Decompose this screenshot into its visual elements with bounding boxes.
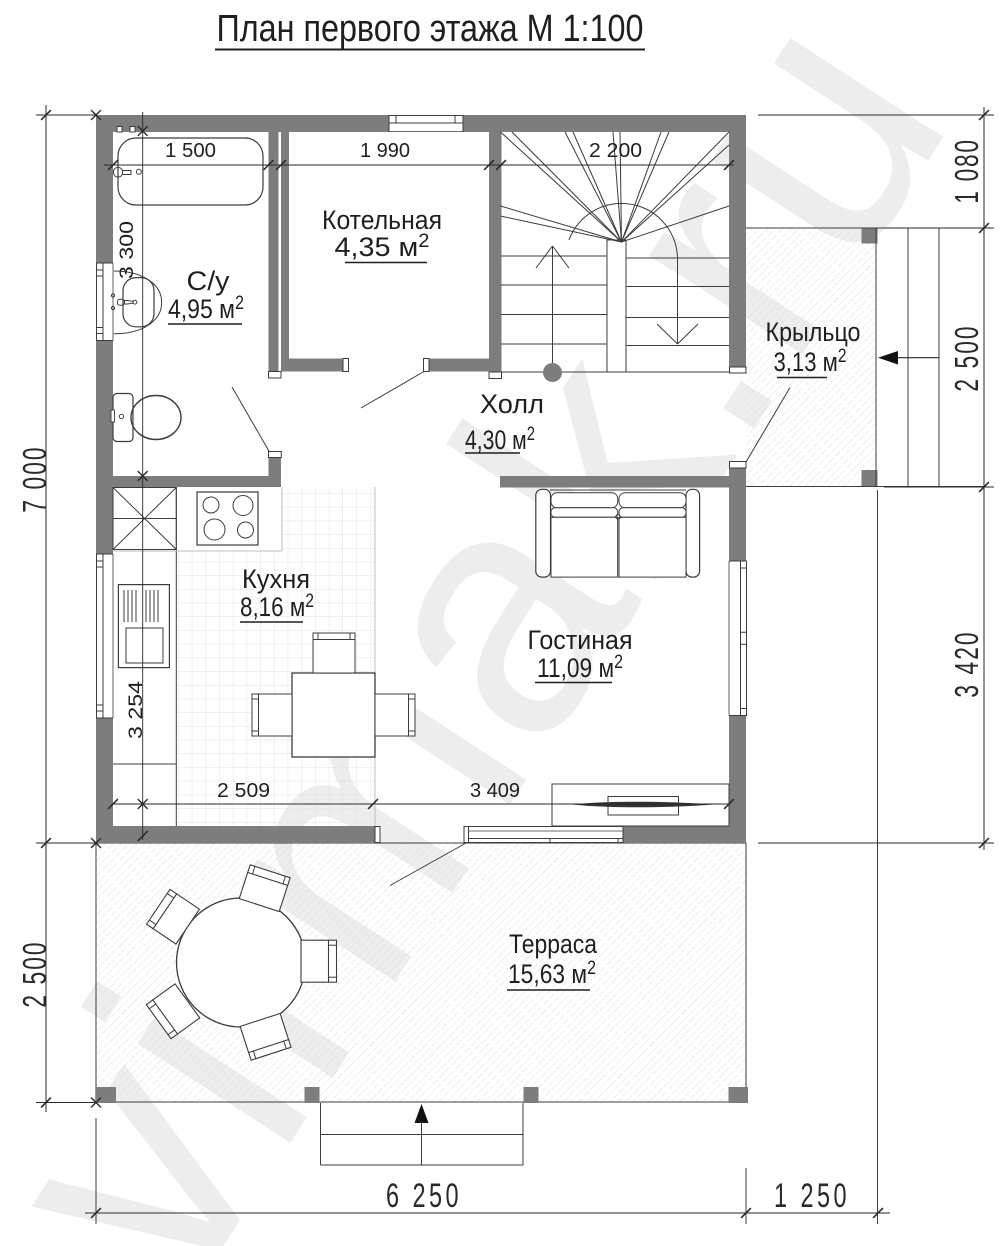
svg-text:3 409: 3 409 [470, 780, 520, 802]
svg-text:2 509: 2 509 [217, 780, 270, 802]
svg-text:Крыльцо: Крыльцо [766, 317, 861, 347]
svg-text:3 300: 3 300 [117, 221, 138, 279]
svg-text:11,09 м2: 11,09 м2 [537, 652, 623, 683]
svg-text:2 500: 2 500 [949, 324, 986, 391]
svg-text:15,63 м2: 15,63 м2 [508, 958, 596, 989]
svg-text:1 250: 1 250 [774, 1178, 850, 1215]
svg-text:1 990: 1 990 [360, 140, 410, 162]
svg-text:7 000: 7 000 [17, 445, 54, 512]
svg-text:Гостиная: Гостиная [528, 625, 633, 655]
svg-text:Кухня: Кухня [242, 564, 310, 594]
svg-text:3 420: 3 420 [949, 630, 986, 697]
svg-text:3,13 м2: 3,13 м2 [774, 346, 847, 377]
svg-text:6 250: 6 250 [386, 1178, 462, 1215]
svg-text:2 200: 2 200 [589, 140, 642, 162]
svg-text:1 080: 1 080 [949, 138, 986, 204]
svg-text:План первого этажа М 1:100: План первого этажа М 1:100 [217, 8, 644, 50]
svg-text:1 500: 1 500 [165, 140, 216, 162]
svg-text:4,30 м2: 4,30 м2 [465, 424, 535, 455]
svg-text:4,95 м2: 4,95 м2 [168, 293, 244, 324]
svg-text:2 500: 2 500 [17, 940, 54, 1007]
svg-text:С/у: С/у [187, 266, 231, 296]
svg-text:Терраса: Терраса [509, 929, 598, 959]
svg-text:4,35 м2: 4,35 м2 [335, 231, 430, 262]
svg-text:8,16 м2: 8,16 м2 [240, 591, 314, 622]
svg-text:Холл: Холл [480, 389, 544, 419]
svg-text:3 254: 3 254 [126, 680, 147, 739]
